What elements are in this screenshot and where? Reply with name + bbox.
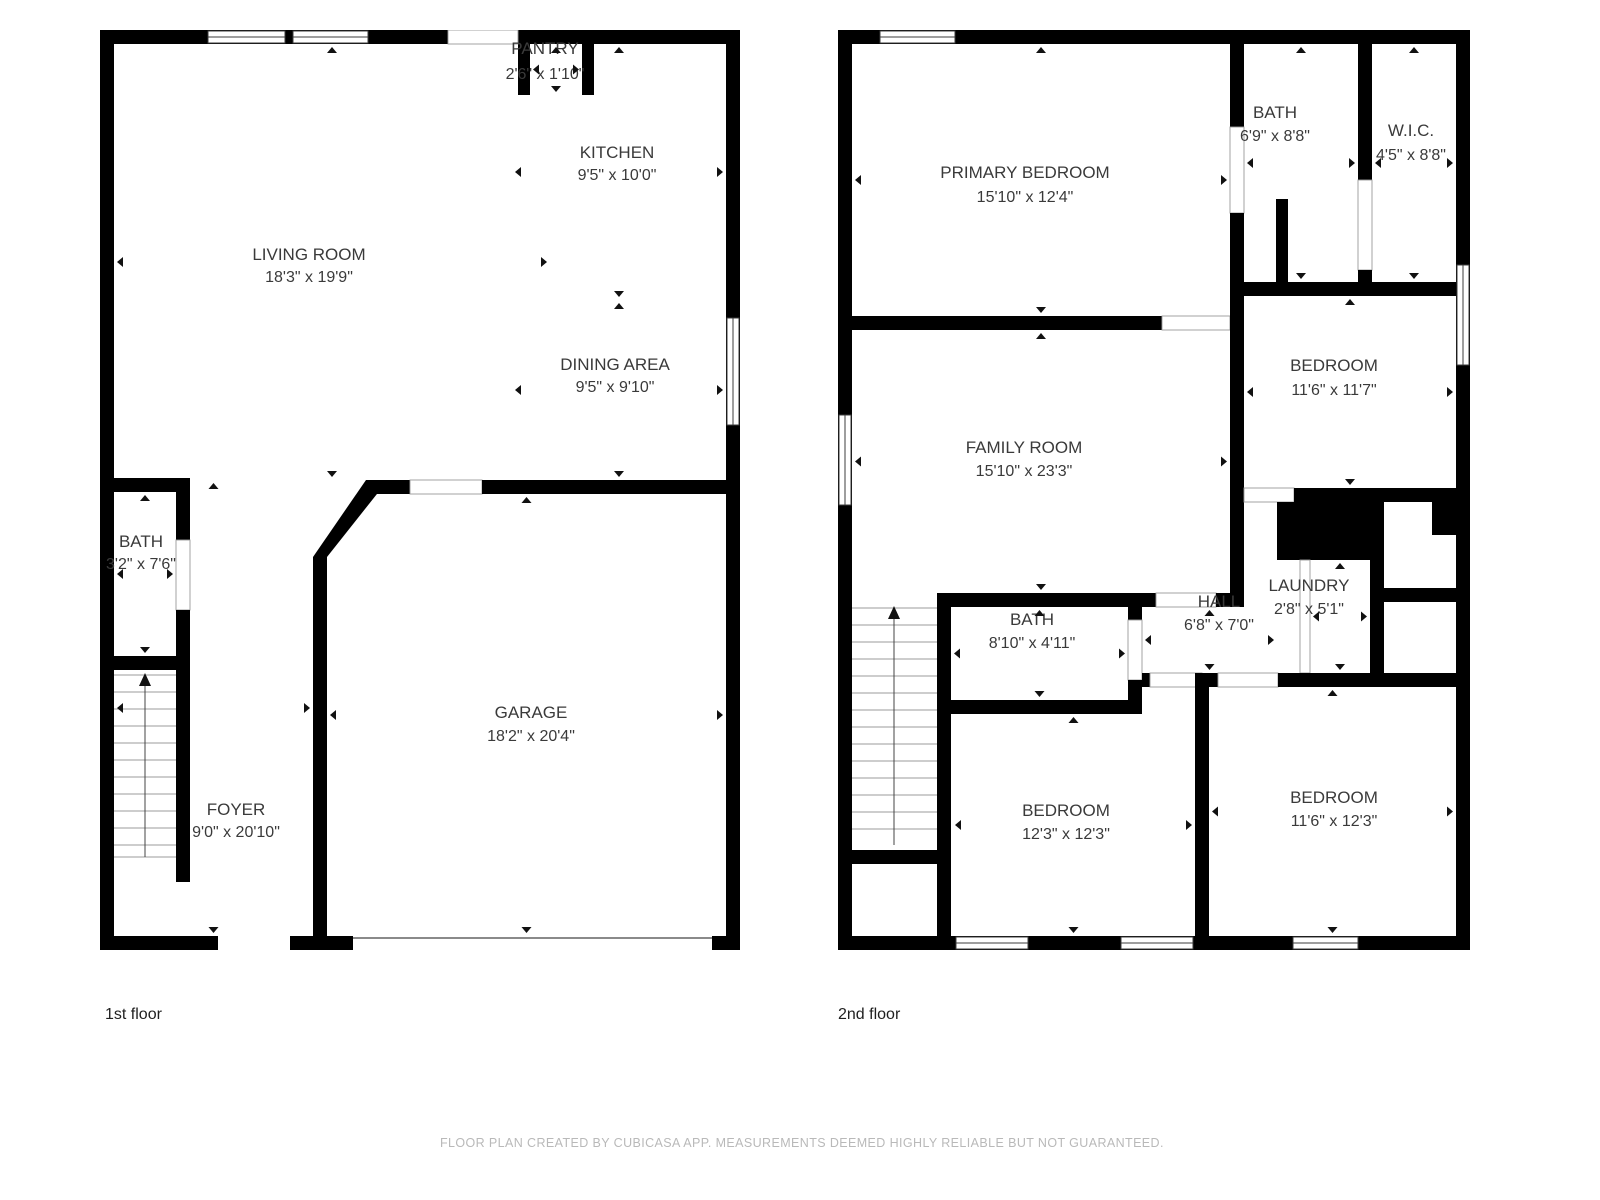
- floor1-svg: PANTRY2'6" x 1'10"KITCHEN9'5" x 10'0"LIV…: [100, 30, 740, 950]
- room-dimensions: 15'10" x 23'3": [976, 463, 1073, 480]
- room-labels: PANTRY2'6" x 1'10"KITCHEN9'5" x 10'0"LIV…: [106, 39, 670, 841]
- room-extent-marker: [551, 86, 561, 92]
- room-dimensions: 2'6" x 1'10": [506, 66, 585, 83]
- room-extent-marker: [1447, 387, 1453, 397]
- wic-door: [1358, 180, 1372, 270]
- room-name: BATH: [119, 532, 163, 551]
- room-extent-marker: [1186, 820, 1192, 830]
- bedroom-br-door: [1218, 673, 1278, 687]
- room-name: BEDROOM: [1290, 788, 1378, 807]
- garage-entry-opening: [410, 480, 482, 494]
- room-dimensions: 3'2" x 7'6": [106, 556, 176, 573]
- room-extent-marker: [304, 703, 310, 713]
- room-dimensions: 9'5" x 9'10": [576, 379, 655, 396]
- room-dimensions: 6'9" x 8'8": [1240, 128, 1310, 145]
- room-dimensions: 6'8" x 7'0": [1184, 617, 1254, 634]
- room-extent-marker: [1361, 612, 1367, 622]
- room-extent-marker: [1035, 691, 1045, 697]
- floor2-plan: PRIMARY BEDROOM15'10" x 12'4"BATH6'9" x …: [838, 30, 1470, 955]
- room-name: GARAGE: [495, 703, 568, 722]
- room-extent-marker: [330, 710, 336, 720]
- room-extent-marker: [1069, 927, 1079, 933]
- bedroom-bl-door: [1150, 673, 1202, 687]
- room-extent-marker: [1036, 307, 1046, 313]
- room-extent-marker: [209, 483, 219, 489]
- room-extent-marker: [1036, 333, 1046, 339]
- room-extent-marker: [140, 647, 150, 653]
- room-extent-marker: [1069, 717, 1079, 723]
- room-dimensions: 18'2" x 20'4": [487, 728, 575, 745]
- stairs: [852, 606, 937, 845]
- room-extent-marker: [717, 710, 723, 720]
- disclaimer-text: FLOOR PLAN CREATED BY CUBICASA APP. MEAS…: [440, 1136, 1130, 1150]
- room-extent-marker: [1296, 273, 1306, 279]
- room-dimensions: 8'10" x 4'11": [989, 635, 1076, 652]
- room-extent-marker: [1145, 635, 1151, 645]
- room-extent-marker: [1409, 47, 1419, 53]
- room-name: PRIMARY BEDROOM: [940, 163, 1109, 182]
- room-extent-marker: [1349, 158, 1355, 168]
- room-name: FAMILY ROOM: [966, 438, 1083, 457]
- room-name: LAUNDRY: [1269, 576, 1350, 595]
- stairs: [114, 673, 176, 857]
- room-extent-marker: [1345, 479, 1355, 485]
- room-extent-marker: [1328, 927, 1338, 933]
- room-extent-marker: [1296, 47, 1306, 53]
- room-extent-marker: [1212, 807, 1218, 817]
- room-extent-marker: [954, 649, 960, 659]
- room-extent-marker: [1221, 457, 1227, 467]
- room-extent-marker: [1328, 690, 1338, 696]
- floor2-svg: PRIMARY BEDROOM15'10" x 12'4"BATH6'9" x …: [838, 30, 1470, 950]
- room-dimensions: 11'6" x 12'3": [1291, 813, 1378, 830]
- room-extent-marker: [1247, 158, 1253, 168]
- room-extent-marker: [955, 820, 961, 830]
- room-extent-marker: [327, 471, 337, 477]
- room-extent-marker: [1036, 584, 1046, 590]
- room-name: FOYER: [207, 800, 266, 819]
- room-extent-marker: [515, 385, 521, 395]
- floor1-label: 1st floor: [105, 1006, 162, 1024]
- room-extent-marker: [614, 47, 624, 53]
- room-extent-marker: [117, 703, 123, 713]
- room-dimensions: 18'3" x 19'9": [265, 269, 353, 286]
- room-name: BEDROOM: [1022, 801, 1110, 820]
- room-extent-marker: [1409, 273, 1419, 279]
- room-extent-marker: [117, 257, 123, 267]
- room-extent-marker: [209, 927, 219, 933]
- bedroom-tr-opening: [1244, 488, 1294, 502]
- room-extent-marker: [327, 47, 337, 53]
- room-name: BATH: [1253, 103, 1297, 122]
- room-extent-marker: [717, 385, 723, 395]
- room-extent-marker: [1221, 175, 1227, 185]
- room-extent-marker: [515, 167, 521, 177]
- room-extent-marker: [1447, 158, 1453, 168]
- room-extent-marker: [1335, 664, 1345, 670]
- room-extent-marker: [1335, 563, 1345, 569]
- room-extent-marker: [1119, 649, 1125, 659]
- room-name: LIVING ROOM: [252, 245, 365, 264]
- room-name: HALL: [1198, 592, 1241, 611]
- floor2-label: 2nd floor: [838, 1006, 900, 1024]
- room-extent-marker: [1345, 299, 1355, 305]
- room-extent-marker: [1447, 807, 1453, 817]
- room-name: DINING AREA: [560, 355, 670, 374]
- room-extent-marker: [1268, 635, 1274, 645]
- room-extent-marker: [1036, 47, 1046, 53]
- room-name: W.I.C.: [1388, 121, 1434, 140]
- room-extent-marker: [717, 167, 723, 177]
- room-dimensions: 9'5" x 10'0": [578, 167, 657, 184]
- floor1-plan: PANTRY2'6" x 1'10"KITCHEN9'5" x 10'0"LIV…: [100, 30, 740, 955]
- room-extent-marker: [614, 291, 624, 297]
- room-extent-marker: [522, 927, 532, 933]
- primary-opening: [1162, 316, 1230, 330]
- bath-door-opening: [176, 540, 190, 610]
- room-extent-marker: [614, 303, 624, 309]
- room-name: KITCHEN: [580, 143, 655, 162]
- room-extent-marker: [541, 257, 547, 267]
- room-dimensions: 4'5" x 8'8": [1376, 147, 1446, 164]
- room-name: BATH: [1010, 610, 1054, 629]
- room-dimensions: 9'0" x 20'10": [192, 824, 280, 841]
- room-extent-marker: [140, 495, 150, 501]
- room-dimensions: 2'8" x 5'1": [1274, 601, 1344, 618]
- room-name: PANTRY: [511, 39, 578, 58]
- room-dimensions: 12'3" x 12'3": [1022, 826, 1110, 843]
- room-extent-marker: [522, 497, 532, 503]
- room-extent-marker: [614, 471, 624, 477]
- room-dimensions: 15'10" x 12'4": [977, 189, 1074, 206]
- room-extent-marker: [1247, 387, 1253, 397]
- kitchen-top-opening: [448, 30, 518, 44]
- room-extent-marker: [855, 457, 861, 467]
- room-extent-marker: [1205, 664, 1215, 670]
- room-name: BEDROOM: [1290, 356, 1378, 375]
- bath2-door: [1128, 620, 1142, 680]
- room-extent-marker: [855, 175, 861, 185]
- room-dimensions: 11'6" x 11'7": [1291, 382, 1376, 399]
